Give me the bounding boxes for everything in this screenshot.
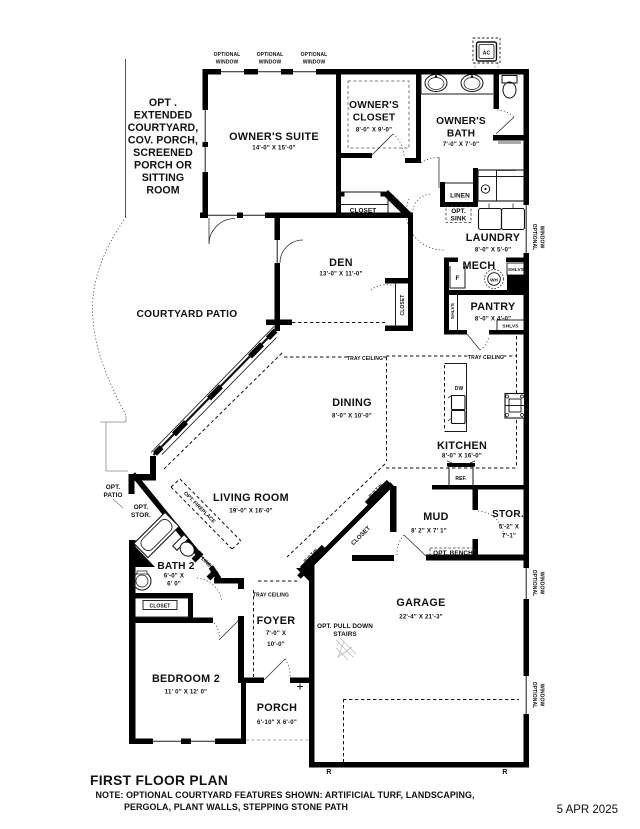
svg-text:BATH 2: BATH 2 — [157, 561, 194, 572]
svg-text:CLOSET: CLOSET — [150, 604, 171, 610]
svg-text:MUD: MUD — [423, 511, 449, 523]
svg-text:BATH: BATH — [447, 129, 475, 140]
svg-text:PORCH: PORCH — [257, 702, 298, 714]
svg-text:WINDOW: WINDOW — [539, 684, 545, 707]
svg-text:8' 2" X 7' 1": 8' 2" X 7' 1" — [411, 528, 447, 535]
svg-text:OPTIONAL: OPTIONAL — [531, 570, 537, 597]
svg-text:11' 0" X 12' 0": 11' 0" X 12' 0" — [165, 689, 208, 696]
svg-text:FIRST FLOOR PLAN: FIRST FLOOR PLAN — [90, 773, 228, 788]
svg-text:COURTYARD PATIO: COURTYARD PATIO — [136, 309, 237, 320]
svg-text:6'-10" X 6'-0": 6'-10" X 6'-0" — [257, 719, 297, 726]
svg-text:NOTE: OPTIONAL COURTYARD FEATU: NOTE: OPTIONAL COURTYARD FEATURES SHOWN:… — [95, 790, 474, 800]
svg-text:COURTYARD,: COURTYARD, — [128, 122, 199, 134]
svg-text:CLOSET: CLOSET — [353, 113, 396, 124]
svg-text:OPTIONAL: OPTIONAL — [531, 224, 537, 251]
svg-text:OWNER'S: OWNER'S — [436, 116, 486, 127]
svg-text:13'-0" X 11'-0": 13'-0" X 11'-0" — [319, 271, 362, 278]
svg-text:F: F — [455, 275, 459, 282]
svg-text:TRAY CEILING: TRAY CEILING — [468, 355, 504, 361]
svg-text:PORCH OR: PORCH OR — [134, 160, 192, 172]
svg-text:CLOSET: CLOSET — [400, 295, 406, 316]
svg-text:R: R — [326, 769, 331, 776]
svg-text:OPT.: OPT. — [106, 484, 121, 491]
svg-text:SCREENED: SCREENED — [133, 147, 193, 159]
svg-text:LIVING ROOM: LIVING ROOM — [213, 492, 289, 504]
svg-text:6'-0" X: 6'-0" X — [164, 573, 185, 580]
svg-text:OWNER'S SUITE: OWNER'S SUITE — [229, 131, 319, 143]
svg-text:7'-0" X: 7'-0" X — [266, 630, 287, 637]
svg-text:WINDOW: WINDOW — [539, 572, 545, 595]
svg-text:OPT.: OPT. — [451, 208, 466, 215]
svg-text:LINEN: LINEN — [450, 193, 470, 200]
svg-text:5'-2" X: 5'-2" X — [499, 524, 520, 531]
svg-text:8'-0" X 16'-0": 8'-0" X 16'-0" — [442, 453, 482, 460]
svg-text:REF.: REF. — [455, 476, 467, 482]
svg-text:R: R — [502, 769, 507, 776]
svg-text:SHLVS: SHLVS — [508, 267, 525, 273]
svg-text:AC: AC — [483, 51, 491, 57]
svg-text:14'-0" X 15'-0": 14'-0" X 15'-0" — [252, 145, 296, 152]
svg-text:SITTING: SITTING — [142, 172, 185, 184]
svg-text:8'-0" X 10'-0": 8'-0" X 10'-0" — [332, 413, 372, 420]
svg-text:CLOSET: CLOSET — [350, 208, 377, 215]
svg-text:DEN: DEN — [329, 257, 353, 269]
svg-text:STOR.: STOR. — [492, 509, 524, 520]
svg-text:BEDROOM 2: BEDROOM 2 — [152, 673, 220, 685]
svg-text:OPTIONAL: OPTIONAL — [257, 52, 284, 58]
svg-text:DINING: DINING — [332, 397, 372, 409]
svg-text:6' 0": 6' 0" — [167, 581, 181, 588]
svg-text:STOR.: STOR. — [131, 512, 151, 519]
svg-text:PERGOLA, PLANT WALLS, STEPPING: PERGOLA, PLANT WALLS, STEPPING STONE PAT… — [124, 802, 348, 812]
svg-text:EXTENDED: EXTENDED — [134, 110, 193, 122]
svg-text:OWNER'S: OWNER'S — [349, 100, 399, 111]
svg-text:WINDOW: WINDOW — [303, 60, 326, 66]
svg-text:7'-1": 7'-1" — [502, 533, 516, 540]
svg-text:WH: WH — [490, 278, 498, 283]
svg-text:OPTIONAL: OPTIONAL — [531, 682, 537, 709]
svg-text:22'-4" X 21'-3": 22'-4" X 21'-3" — [399, 614, 443, 621]
svg-text:OPTIONAL: OPTIONAL — [301, 52, 328, 58]
svg-text:FOYER: FOYER — [257, 615, 296, 627]
svg-text:WINDOW: WINDOW — [539, 226, 545, 249]
svg-text:COV. PORCH,: COV. PORCH, — [128, 135, 198, 147]
svg-text:19'-0" X 16'-0": 19'-0" X 16'-0" — [229, 508, 273, 515]
svg-text:TRAY CEILING: TRAY CEILING — [253, 593, 289, 599]
svg-text:10'-0": 10'-0" — [267, 641, 285, 648]
svg-text:SINK: SINK — [451, 216, 467, 223]
svg-text:5 APR 2025: 5 APR 2025 — [557, 804, 618, 816]
svg-text:MECH: MECH — [463, 260, 496, 272]
svg-text:SHLVS: SHLVS — [450, 302, 456, 319]
svg-text:OPTIONAL: OPTIONAL — [214, 52, 241, 58]
svg-text:8'-0" X 5'-0": 8'-0" X 5'-0" — [475, 247, 511, 254]
svg-text:PATIO: PATIO — [103, 492, 122, 499]
svg-text:ROOM: ROOM — [146, 185, 179, 197]
svg-text:LAUNDRY: LAUNDRY — [466, 232, 521, 244]
svg-text:WINDOW: WINDOW — [259, 60, 282, 66]
svg-text:TRAY CEILING: TRAY CEILING — [347, 356, 383, 362]
svg-text:8'-0" X 9'-0": 8'-0" X 9'-0" — [356, 127, 392, 134]
svg-text:PANTRY: PANTRY — [471, 301, 516, 313]
svg-text:OPT. PULL DOWN: OPT. PULL DOWN — [317, 623, 373, 630]
svg-text:WINDOW: WINDOW — [216, 60, 239, 66]
svg-text:OPT.: OPT. — [134, 504, 149, 511]
svg-text:8'-0" X 4'-0": 8'-0" X 4'-0" — [475, 316, 511, 323]
svg-text:7'-0" X 7'-0": 7'-0" X 7'-0" — [443, 141, 479, 148]
svg-text:SHLVS: SHLVS — [502, 324, 519, 330]
svg-text:KITCHEN: KITCHEN — [437, 440, 487, 452]
svg-text:DW: DW — [455, 386, 464, 392]
svg-text:OPT .: OPT . — [149, 97, 177, 109]
svg-text:GARAGE: GARAGE — [396, 597, 445, 609]
svg-text:STAIRS: STAIRS — [333, 631, 357, 638]
